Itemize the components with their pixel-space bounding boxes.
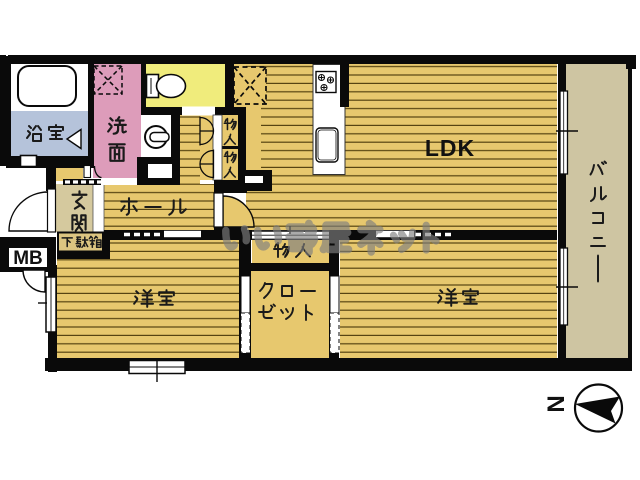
svg-text:LDK: LDK [425,135,475,161]
svg-text:N: N [543,395,570,412]
svg-text:MB: MB [13,248,43,269]
